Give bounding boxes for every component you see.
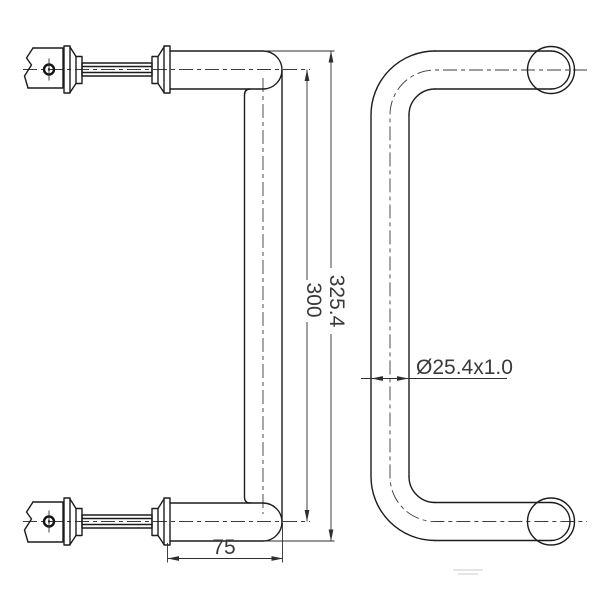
arrowhead-up — [329, 51, 334, 63]
dim-text-overall-height: 325.4 — [325, 275, 348, 328]
dimension-tube-spec: Ø25.4x1.0 — [361, 356, 513, 381]
dimensions: 300 325.4 75 Ø25.4x1.0 — [168, 51, 513, 563]
arrowhead-up — [305, 70, 310, 82]
arrowhead-right — [397, 376, 409, 381]
outer-contour — [371, 51, 435, 541]
arrowhead-left — [372, 376, 384, 381]
front-view-tube-centerline — [390, 70, 587, 522]
print-artifact — [453, 570, 483, 574]
flange-neck-door-side — [76, 509, 82, 536]
threaded-rod — [82, 63, 152, 76]
flange-neck-handle-side — [152, 57, 158, 84]
technical-drawing-page: 300 325.4 75 Ø25.4x1.0 — [0, 0, 600, 600]
inner-bend-top — [409, 89, 435, 115]
break-line — [25, 502, 34, 542]
grip-top-cap — [263, 51, 282, 89]
threaded-rod — [82, 515, 152, 528]
drawing-canvas: 300 325.4 75 Ø25.4x1.0 — [0, 0, 600, 600]
arrowhead-left — [168, 556, 180, 561]
arrowhead-down — [305, 510, 310, 522]
dimension-overall-height: 325.4 — [325, 51, 348, 541]
dimension-projection: 75 — [168, 536, 284, 561]
grip-left-edge — [245, 89, 251, 503]
flange-neck-handle-side — [152, 509, 158, 536]
grip-bottom-cap — [263, 503, 282, 541]
top-leg-tube — [170, 51, 263, 89]
front-view — [371, 47, 575, 546]
break-line — [25, 48, 34, 88]
flange-neck-door-side — [76, 57, 82, 84]
side-view — [25, 46, 283, 545]
dim-text-tube-spec: Ø25.4x1.0 — [416, 356, 513, 379]
inner-bend-bottom — [409, 477, 435, 503]
arrowhead-right — [272, 556, 284, 561]
dim-text-projection: 75 — [212, 536, 235, 559]
dim-text-hole-centers: 300 — [302, 282, 325, 317]
dimension-hole-centers: 300 — [302, 70, 325, 522]
door-block-outline — [28, 502, 63, 542]
arrowhead-down — [329, 530, 334, 542]
